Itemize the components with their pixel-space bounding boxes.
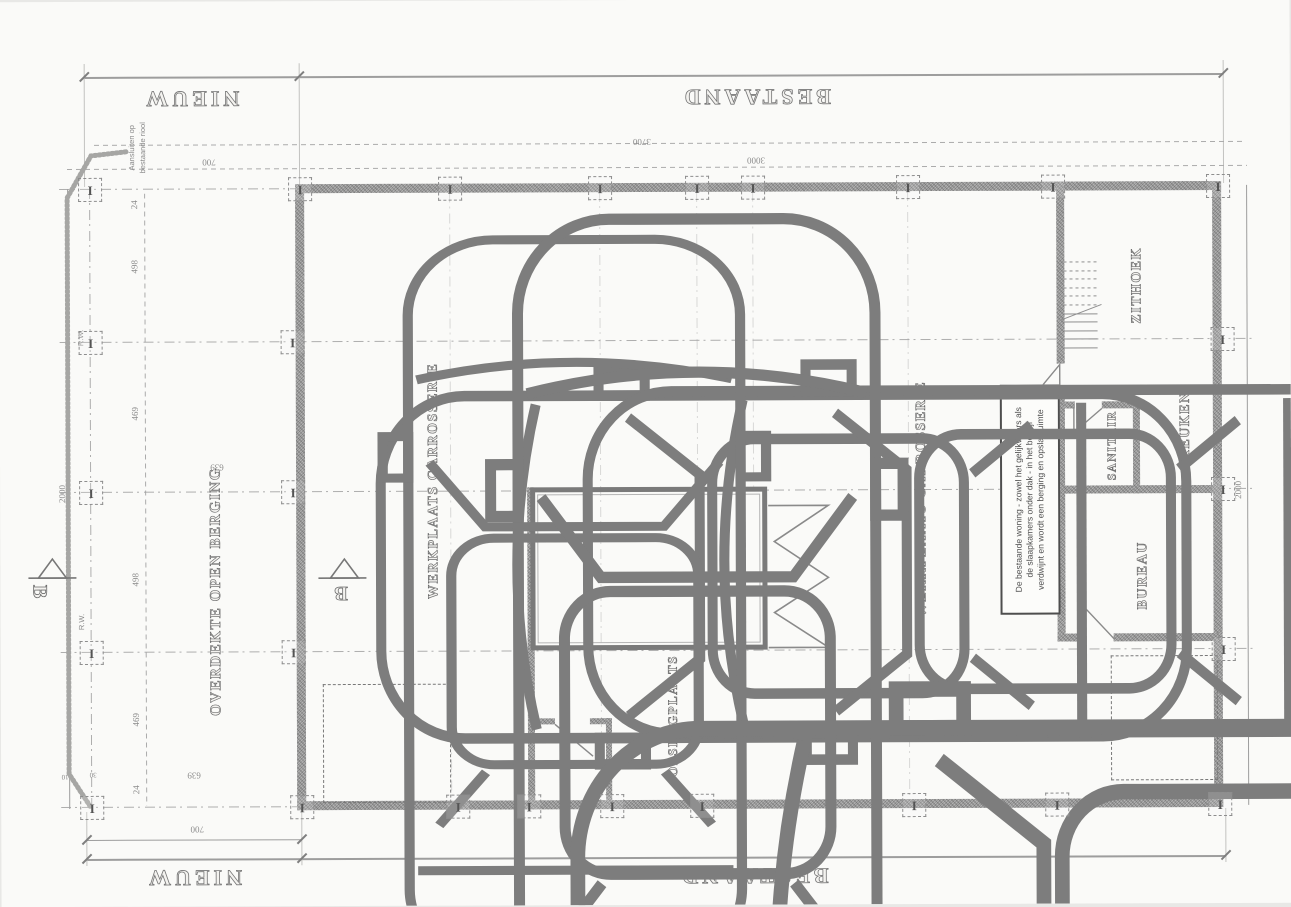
- column-symbol: I: [80, 641, 104, 665]
- i-beam-icon: I: [88, 183, 93, 196]
- i-beam-icon: I: [456, 800, 461, 813]
- room-label-sanitair: SANITAIR: [1104, 410, 1119, 480]
- stair-tread: [1063, 304, 1097, 305]
- column-symbol: I: [438, 177, 462, 201]
- dimension-new-bottom: 700: [191, 825, 205, 835]
- door-swing-icon: [1086, 608, 1115, 639]
- column-symbol: I: [282, 640, 306, 664]
- dimension-line-new-bottom: [86, 839, 301, 841]
- left-dimension-line: [67, 189, 70, 809]
- column-symbol: I: [78, 178, 102, 202]
- column-symbol: I: [446, 795, 470, 819]
- car-icon: [380, 367, 1187, 765]
- folding-door-icon: [768, 505, 828, 647]
- zone-label-nieuw-bottom: NIEUW: [145, 864, 242, 890]
- dim-col-469a: 469: [130, 407, 140, 421]
- column-symbol: I: [1212, 637, 1236, 661]
- rw-marker: R.W.: [77, 614, 88, 630]
- i-beam-icon: I: [1221, 642, 1226, 655]
- stair-tread: [1064, 330, 1098, 331]
- stair-tread: [1064, 347, 1098, 348]
- i-beam-icon: I: [90, 801, 95, 814]
- column-symbol: I: [1208, 792, 1232, 816]
- stairs-icon: [0, 0, 1289, 2]
- column-symbol: I: [896, 175, 920, 199]
- stair-tread: [1063, 270, 1097, 271]
- i-beam-icon: I: [291, 486, 296, 499]
- i-beam-icon: I: [906, 181, 911, 194]
- column-symbol: I: [1041, 175, 1065, 199]
- stair-tread: [1063, 296, 1097, 297]
- dim-col-498a: 498: [129, 260, 139, 274]
- room-label-opslagplaats: OPSLAGPLAATS: [665, 655, 681, 777]
- stair-tread: [1064, 313, 1098, 314]
- column-symbol: I: [1211, 327, 1235, 351]
- bottom-dimension-line: [86, 855, 1226, 860]
- closet-top-wall: [534, 718, 555, 724]
- closet-right-wall: [606, 718, 612, 806]
- i-beam-icon: I: [1221, 482, 1226, 495]
- sewer-annotation-line2: bestaande riool: [138, 122, 149, 173]
- i-beam-icon: I: [88, 336, 93, 349]
- i-beam-icon: I: [527, 800, 532, 813]
- room-label-keuken: KEUKEN: [1178, 391, 1194, 461]
- note-line1: De bestaande woning - zowel het gelijkvl…: [1013, 388, 1025, 612]
- room-label-bureau: BUREAU: [1135, 541, 1151, 609]
- i-beam-icon: I: [89, 646, 94, 659]
- column-symbol: I: [80, 796, 104, 820]
- stair-tread: [1064, 322, 1098, 323]
- partition-wall-upper: [1056, 182, 1065, 364]
- i-beam-icon: I: [598, 182, 603, 195]
- column-symbol: I: [79, 331, 103, 355]
- note-text: De bestaande woning - zowel het gelijkvl…: [1013, 388, 1047, 612]
- i-beam-icon: I: [298, 183, 303, 196]
- dim-col-24b: 24: [131, 785, 141, 794]
- section-triangle-icon: [330, 559, 358, 578]
- zone-label-nieuw-top: NIEUW: [142, 85, 239, 111]
- dimension-overall: 3700: [633, 137, 651, 147]
- column-symbol: I: [741, 176, 765, 200]
- section-marker-b-left: B: [28, 585, 51, 598]
- i-beam-icon: I: [89, 486, 94, 499]
- note-line2: de slaapkamers onder dak - in het bedrij…: [1024, 388, 1036, 612]
- stair-tread: [1063, 287, 1097, 288]
- section-triangle-icon: [38, 559, 66, 578]
- dim-small-10: 10: [62, 773, 69, 781]
- bureau-bottom-wall: [1114, 633, 1222, 641]
- sanitair-right-wall: [1133, 401, 1140, 493]
- i-beam-icon: I: [291, 646, 296, 659]
- section-marker-b-right: B: [334, 581, 347, 604]
- dashed-outline-area: [1111, 655, 1218, 780]
- column-symbol: I: [288, 177, 312, 201]
- i-beam-icon: I: [1216, 179, 1221, 192]
- column-symbol: I: [588, 176, 612, 200]
- site-boundary-hatch: [67, 152, 128, 808]
- zone-label-bestaand-bottom: BESTAAND: [678, 862, 828, 889]
- sewer-annotation: Aansluiten op bestaande riool: [127, 122, 149, 173]
- i-beam-icon: I: [300, 801, 305, 814]
- column-symbol: I: [281, 330, 305, 354]
- dimension-left-2000: 2000: [57, 485, 67, 503]
- bureau-bottom-wall: [1058, 633, 1084, 641]
- i-beam-icon: I: [290, 336, 295, 349]
- i-beam-icon: I: [695, 181, 700, 194]
- room-label-zithoek: ZITHOEK: [1129, 247, 1145, 324]
- dim-col-498b: 498: [130, 573, 140, 587]
- i-beam-icon: I: [610, 800, 615, 813]
- door-swing-icon: [555, 724, 593, 756]
- column-symbol: I: [902, 793, 926, 817]
- dimension-line-overall: [94, 141, 1246, 146]
- column-symbol: I: [1206, 174, 1230, 198]
- room-label-spuitcabine: SPUITCABINE: [733, 520, 749, 625]
- dimension-line-bays: [67, 165, 1247, 170]
- floor-plan-scan: NIEUW BESTAAND 3700 700 3000 NIEUW BESTA…: [0, 0, 1291, 907]
- column-grid: IIIIIIIIIIIIIIIIIIIIIIIIIII: [0, 0, 1289, 2]
- dim-col-24a: 24: [129, 200, 139, 209]
- column-symbol: I: [690, 794, 714, 818]
- dashed-outline-area: [323, 684, 451, 803]
- column-symbol: I: [600, 794, 624, 818]
- top-dimension-line: [84, 73, 1224, 78]
- note-line3: verdwijnt en wordt een berging en opslag…: [1035, 388, 1047, 612]
- room-label-werkplaats-rechts: WERKPLAATS CARROSSERIE: [914, 381, 931, 617]
- sanitair-top-wall: [1064, 402, 1075, 409]
- column-symbol: I: [290, 795, 314, 819]
- i-beam-icon: I: [1055, 798, 1060, 811]
- column-symbol: I: [517, 794, 541, 818]
- door-swing-icon: [1074, 406, 1102, 432]
- spray-booth-walls: [530, 487, 768, 651]
- room-label-overdekte-open-berging: OVERDEKTE OPEN BERGING: [208, 467, 226, 716]
- column-symbol: I: [1045, 793, 1069, 817]
- i-beam-icon: I: [751, 181, 756, 194]
- dimension-new-top: 700: [202, 157, 216, 167]
- stair-tread: [1064, 339, 1098, 340]
- grid-line: [907, 191, 910, 799]
- zone-label-bestaand-top: BESTAAND: [681, 83, 831, 110]
- room-label-werkplaats-links: WERKPLAATS CARROSSERIE: [426, 363, 443, 599]
- stair-tread: [1063, 279, 1097, 280]
- right-dimension-line: [1246, 185, 1249, 805]
- dimension-bay: 3000: [747, 156, 765, 166]
- note-box: De bestaande woning - zowel het gelijkvl…: [1000, 385, 1061, 615]
- stair-tread: [1063, 261, 1097, 262]
- i-beam-icon: I: [1051, 180, 1056, 193]
- i-beam-icon: I: [448, 182, 453, 195]
- i-beam-icon: I: [700, 799, 705, 812]
- column-symbol: I: [685, 176, 709, 200]
- inner-dimension-line: [144, 194, 147, 806]
- i-beam-icon: I: [1220, 332, 1225, 345]
- column-symbol: I: [79, 481, 103, 505]
- i-beam-icon: I: [912, 799, 917, 812]
- dim-col-469b: 469: [131, 713, 141, 727]
- sewer-annotation-line1: Aansluiten op: [127, 122, 138, 173]
- i-beam-icon: I: [1218, 797, 1223, 810]
- column-symbol: I: [281, 480, 305, 504]
- dim-639-bottom: 639: [187, 771, 201, 781]
- column-symbol: I: [1211, 477, 1235, 501]
